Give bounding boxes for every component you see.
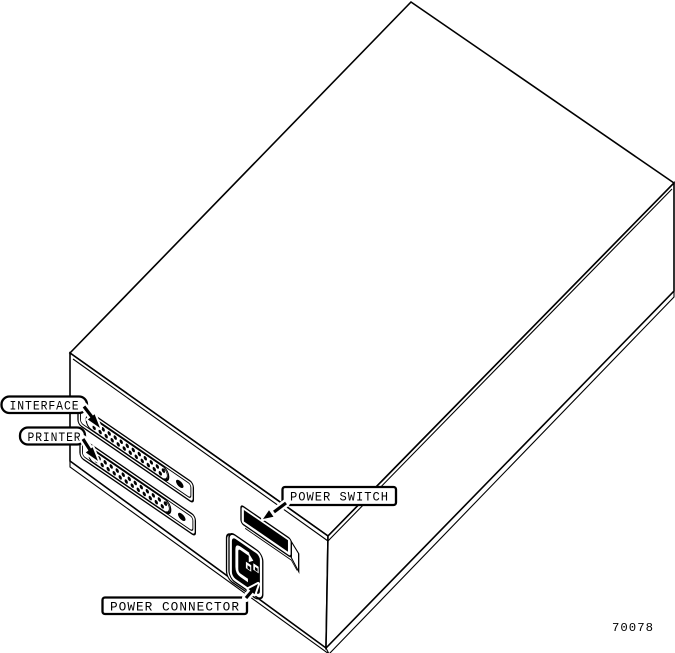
label-power-connector-text: POWER CONNECTOR [110, 601, 240, 615]
diagram-canvas: INTERFACE PRINTER POWER SWITCH POWER CON… [0, 0, 675, 653]
label-interface-text: INTERFACE [10, 399, 80, 413]
label-printer-text: PRINTER [28, 431, 82, 445]
label-printer: PRINTER [20, 428, 85, 445]
label-interface: INTERFACE [2, 397, 88, 414]
label-power-connector: POWER CONNECTOR [103, 598, 248, 615]
label-power-switch: POWER SWITCH [283, 487, 397, 505]
label-power-switch-text: POWER SWITCH [290, 491, 389, 505]
figure-number: 70078 [612, 621, 654, 635]
rear-view-diagram: INTERFACE PRINTER POWER SWITCH POWER CON… [0, 0, 675, 653]
